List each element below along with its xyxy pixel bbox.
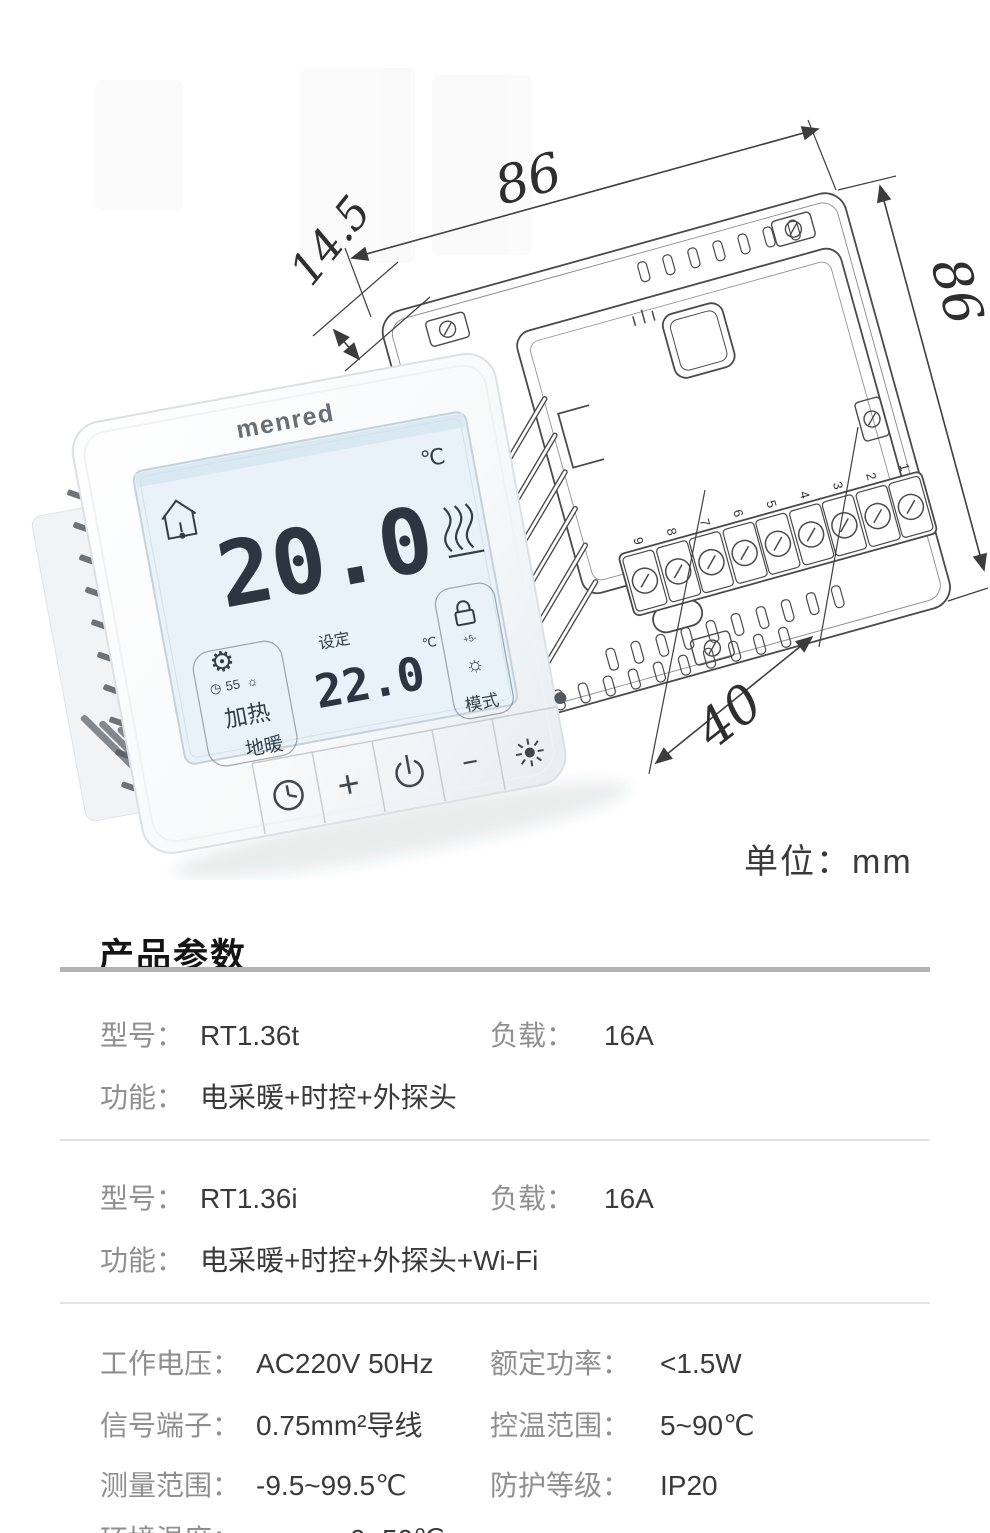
divider-light — [60, 1302, 930, 1304]
spec-value: RT1.36i — [200, 1183, 298, 1214]
spec-label: 负载： — [490, 1183, 574, 1214]
spec-label: 控温范围： — [490, 1410, 630, 1441]
spec-row-function-1: 功能：电采暖+时控+外探头 — [100, 1078, 930, 1118]
product-page: 9 8 7 6 5 4 3 2 1 — [0, 0, 990, 1533]
spec-value: -9.5~99.5℃ — [256, 1470, 407, 1501]
sun-mode-icon: ☼ — [463, 651, 486, 677]
spec-label: 型号： — [100, 1020, 184, 1051]
spec-row-model-2: 型号：RT1.36i 负载：16A — [100, 1179, 930, 1219]
spec-label: 防护等级： — [490, 1470, 630, 1501]
set-temp-unit: ℃ — [421, 634, 438, 651]
spec-value: RT1.36t — [200, 1020, 299, 1051]
spec-label: 环境温度： — [100, 1524, 240, 1533]
spec-row-ambient-partial: 环境温度：0~50℃ — [100, 1520, 930, 1533]
spec-value: 0~50℃ — [350, 1524, 445, 1533]
spec-row-voltage: 工作电压：AC220V 50Hz 额定功率：<1.5W — [100, 1344, 930, 1384]
spec-row-function-2: 功能：电采暖+时控+外探头+Wi-Fi — [100, 1241, 930, 1281]
spec-row-model-1: 型号：RT1.36t 负载：16A — [100, 1016, 930, 1056]
divider-strong — [60, 967, 930, 972]
spec-value: IP20 — [660, 1470, 718, 1501]
unit-note: 单位：mm — [744, 834, 913, 883]
spec-value: 电采暖+时控+外探头 — [200, 1082, 457, 1113]
spec-value: AC220V 50Hz — [256, 1348, 433, 1379]
spec-value: 0.75mm²导线 — [256, 1410, 422, 1441]
spec-label: 负载： — [490, 1020, 574, 1051]
spec-label: 测量范围： — [100, 1470, 240, 1501]
spec-value: 5~90℃ — [660, 1410, 755, 1441]
spec-label: 型号： — [100, 1183, 184, 1214]
spec-label: 功能： — [100, 1245, 184, 1276]
divider-light — [60, 1139, 930, 1141]
dim-span-label: 40 — [684, 673, 774, 762]
spec-label: 功能： — [100, 1082, 184, 1113]
room-temp-unit: ℃ — [418, 443, 447, 472]
spec-row-terminal: 信号端子：0.75mm²导线 控温范围：5~90℃ — [100, 1406, 930, 1446]
spec-label: 工作电压： — [100, 1348, 240, 1379]
spec-value: 16A — [604, 1020, 654, 1051]
spec-value: 16A — [604, 1183, 654, 1214]
program-number: 55 — [224, 676, 241, 693]
spec-value: <1.5W — [660, 1348, 742, 1379]
dim-height-label: 86 — [918, 251, 990, 331]
spec-label: 额定功率： — [490, 1348, 630, 1379]
spec-label: 信号端子： — [100, 1410, 240, 1441]
spec-row-measure-range: 测量范围：-9.5~99.5℃ 防护等级：IP20 — [100, 1466, 930, 1506]
spec-value: 电采暖+时控+外探头+Wi-Fi — [200, 1245, 538, 1276]
product-illustration: 9 8 7 6 5 4 3 2 1 — [0, 0, 990, 880]
